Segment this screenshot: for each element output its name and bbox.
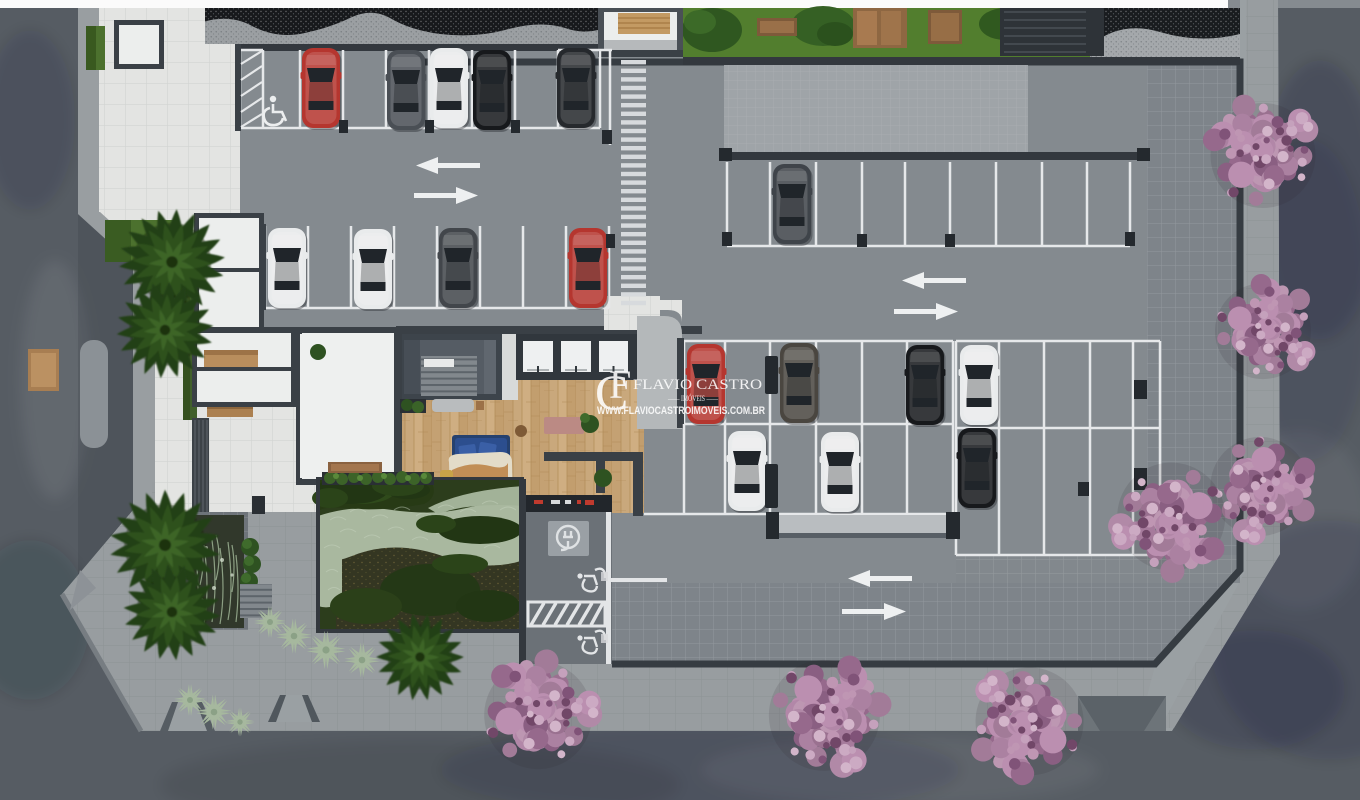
- svg-text:F: F: [609, 362, 631, 407]
- svg-text:FLAVIO CASTRO: FLAVIO CASTRO: [633, 377, 762, 393]
- svg-text:WWW.FLAVIOCASTROIMOVEIS.COM.BR: WWW.FLAVIOCASTROIMOVEIS.COM.BR: [597, 405, 765, 417]
- svg-text:—— IMÓVEIS ——: —— IMÓVEIS ——: [667, 393, 718, 403]
